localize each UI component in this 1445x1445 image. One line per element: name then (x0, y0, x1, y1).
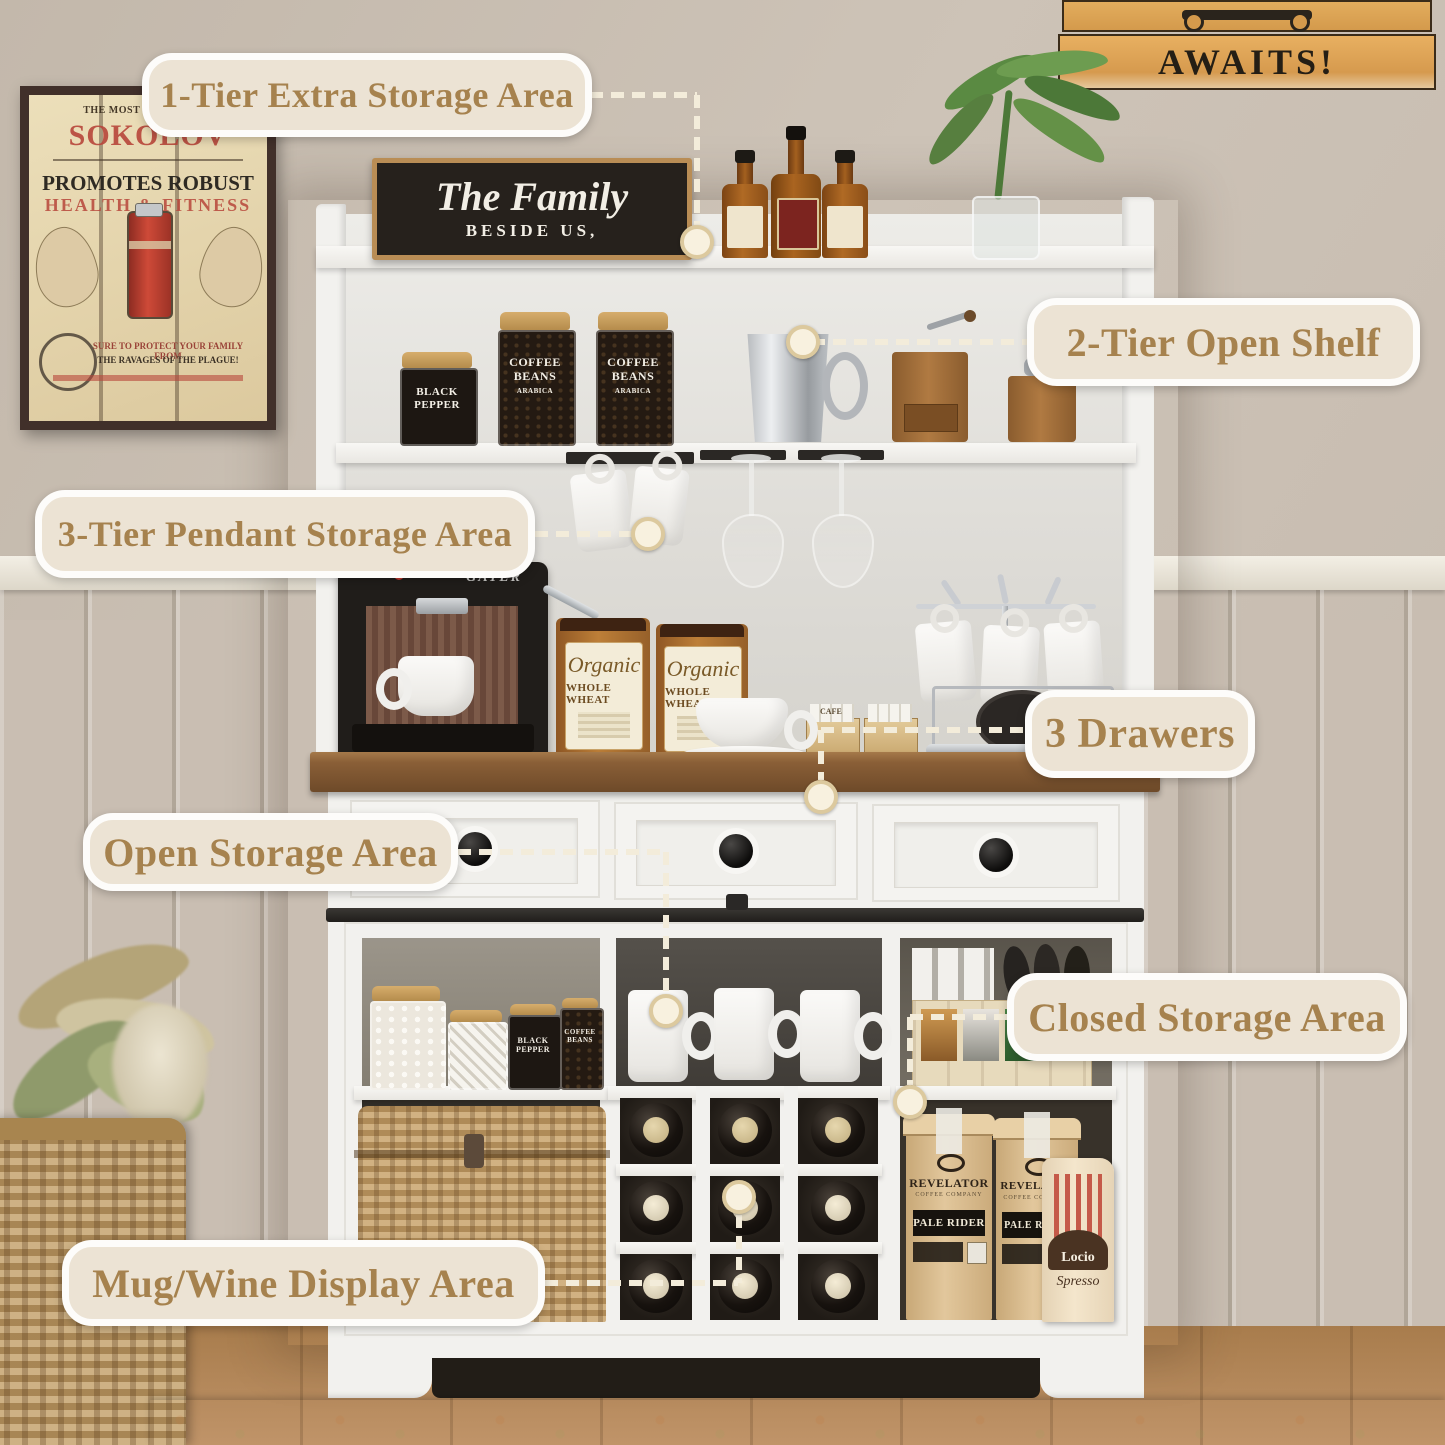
poster-bottom2: THE RAVAGES OF THE PLAGUE! (83, 355, 253, 365)
menu-books (912, 948, 994, 1006)
drawer (872, 804, 1120, 902)
callout-connector-line (821, 727, 1025, 733)
eye-logo-icon (937, 1154, 965, 1172)
bamboo-lid (450, 1010, 502, 1022)
wine-cork (643, 1273, 669, 1299)
callout-endpoint (631, 517, 665, 551)
wine-cubby (798, 1254, 878, 1320)
coffee-bean-jar: COFFEEBEANS ARABICA (498, 312, 572, 442)
jar-contents (560, 1008, 604, 1090)
wine-bottle (718, 1103, 772, 1157)
awaits-sign: AWAITS! (1058, 0, 1434, 88)
grinder-body (892, 352, 968, 442)
callout-connector-line (535, 531, 635, 537)
hanging-mug (569, 469, 634, 553)
bag-brand: REVELATOR (906, 1176, 992, 1191)
coffee-grinder (880, 318, 980, 442)
wine-bottle (811, 1181, 865, 1235)
glass-bowl (722, 514, 784, 588)
wine-cork (825, 1195, 851, 1221)
callout-connector-line (694, 95, 700, 225)
glass-bowl (812, 514, 874, 588)
callout-pill: 2-Tier Open Shelf (1027, 298, 1420, 386)
bamboo-lid (598, 312, 668, 330)
family-sign: The Family BESIDE US, (372, 158, 692, 260)
grinder-knob (964, 310, 976, 322)
callout-connector-line (663, 852, 669, 994)
espresso-machine: GATER (338, 562, 548, 764)
callout-endpoint (722, 1180, 756, 1214)
machine-grouphead (416, 598, 468, 614)
jar-label: COFFEEBEANS ARABICA (498, 356, 572, 395)
awaits-plank-top (1062, 0, 1432, 32)
mug-handle (854, 1012, 892, 1060)
grinder-hopper (908, 324, 952, 352)
wine-glass (722, 454, 780, 586)
bamboo-lid (500, 312, 570, 330)
coffee-bean-jar: COFFEEBEANS (560, 998, 600, 1086)
wine-cork (825, 1117, 851, 1143)
wine-grid-divider (784, 1086, 798, 1322)
wine-cubby (710, 1254, 780, 1320)
annotated-product-image: THE MOST POPULAR FO SOKOLOV PROMOTES ROB… (0, 0, 1445, 1445)
jar-contents (448, 1022, 508, 1090)
bamboo-lid (372, 986, 440, 1001)
wine-cubby (620, 1254, 692, 1320)
pepper-jar: BLACKPEPPER (400, 352, 474, 442)
table-edge-foreground (150, 1400, 1445, 1445)
canister-lid (660, 624, 744, 637)
poster-rule (53, 159, 243, 161)
wine-bottle (629, 1103, 683, 1157)
whisky-bottle (722, 150, 768, 258)
poster-tonic-bottle (127, 211, 173, 319)
callout-connector-line (545, 1280, 738, 1286)
wine-cubby (798, 1176, 878, 1242)
vintage-fitness-poster: THE MOST POPULAR FO SOKOLOV PROMOTES ROB… (20, 86, 276, 430)
label-art (578, 712, 630, 738)
pitcher-handle (822, 352, 868, 420)
coffee-bag: REVELATOR COFFEE COMPANY PALE RIDER (906, 1114, 992, 1320)
wine-grid-shelf (616, 1242, 882, 1254)
sugar-packets (868, 704, 912, 722)
glass-stem (749, 460, 754, 516)
canister-label: Organic WHOLE WHEAT (565, 642, 643, 750)
bamboo-lid (562, 998, 598, 1008)
sugar-cube-jar (448, 1010, 504, 1086)
wine-bottle (811, 1259, 865, 1313)
awaits-plank-bottom: AWAITS! (1058, 34, 1436, 90)
whisky-bottle (771, 126, 821, 258)
jar-contents (370, 1001, 446, 1090)
espresso-brand: Locio (1061, 1250, 1094, 1270)
glass-stem (839, 460, 844, 516)
canister-script: Organic (568, 654, 641, 676)
bag-tape (936, 1108, 962, 1154)
wine-cork (643, 1117, 669, 1143)
bag-band: PALE RIDER (913, 1210, 985, 1236)
poster-right-arm (193, 221, 270, 312)
bag-sub: COFFEE COMPANY (906, 1192, 992, 1198)
coffee-bean-jar: COFFEEBEANS ARABICA (596, 312, 670, 442)
basket-strap (464, 1134, 484, 1168)
bag-table (967, 1242, 987, 1264)
poster-red-bar (53, 375, 243, 381)
display-mug (714, 988, 774, 1080)
wine-bottle (629, 1259, 683, 1313)
callout-connector-line (818, 730, 824, 780)
drawer-knob (979, 838, 1013, 872)
callout-endpoint (649, 994, 683, 1028)
base-shadow-gap (432, 1358, 1040, 1398)
espresso-arch: Locio (1048, 1230, 1108, 1270)
bottle-cap (735, 150, 755, 163)
wine-cubby (620, 1176, 692, 1242)
organic-canister: Organic WHOLE WHEAT (556, 618, 650, 762)
car-wheel (1184, 12, 1204, 32)
cup-handle (784, 710, 818, 750)
whisky-bottle (822, 150, 868, 258)
wine-cubby (710, 1098, 780, 1164)
espresso-name: Spresso (1042, 1274, 1114, 1290)
poster-left-arm (27, 221, 104, 312)
callout-connector-line (812, 339, 1027, 345)
awaits-text: AWAITS! (1158, 41, 1336, 83)
wine-cubby (620, 1098, 692, 1164)
canister-script: Organic (667, 658, 740, 680)
hutch-right-side (1122, 197, 1154, 764)
bottle-label (827, 206, 863, 248)
bottle-label (777, 198, 819, 250)
callout-pill: 3-Tier Pendant Storage Area (35, 490, 535, 578)
jar-label: COFFEEBEANS (560, 1028, 600, 1044)
callout-endpoint (893, 1085, 927, 1119)
wine-bottle (718, 1259, 772, 1313)
grinder-drawer (904, 404, 958, 432)
callout-pill: 3 Drawers (1025, 690, 1255, 778)
bottle-cap (786, 126, 806, 140)
machine-driptray (352, 724, 534, 752)
bamboo-lid (510, 1004, 556, 1015)
canister-lid (560, 618, 646, 631)
right-bay-shelf (896, 1086, 1116, 1100)
cup-handle (376, 668, 412, 710)
espresso-bag: Locio Spresso (1042, 1158, 1114, 1322)
bottle-cap (135, 203, 163, 217)
callout-connector-line (907, 1017, 913, 1085)
family-sign-line2: BESIDE US, (466, 221, 599, 241)
bag-name: PALE RIDER (913, 1217, 985, 1229)
callout-endpoint (680, 225, 714, 259)
wine-bottle (629, 1181, 683, 1235)
wine-glass (812, 454, 870, 586)
base-leg (328, 1336, 432, 1398)
wine-cork (732, 1117, 758, 1143)
poster-line1: PROMOTES ROBUST (29, 171, 267, 196)
jar-label: BLACKPEPPER (508, 1036, 558, 1054)
wine-grid-divider (696, 1086, 710, 1322)
wine-bottle (811, 1103, 865, 1157)
mug-handle (1000, 607, 1030, 637)
callout-connector-line (590, 92, 697, 98)
pearl-jar (370, 986, 442, 1086)
bag-table (913, 1242, 963, 1262)
pampas-plume (112, 1004, 208, 1130)
cup-bowl (696, 698, 788, 750)
sliding-door-rail (326, 908, 1144, 922)
callout-pill: Open Storage Area (83, 813, 458, 891)
family-sign-line1: The Family (436, 177, 628, 217)
callout-endpoint (804, 780, 838, 814)
bottle-band (129, 241, 171, 249)
callout-connector-line (736, 1215, 742, 1283)
sugar-packet-label: CAFE (820, 707, 842, 716)
drawer-knob (719, 834, 753, 868)
machine-cup (398, 656, 474, 716)
canister-name: WHOLE WHEAT (566, 682, 642, 706)
wine-cork (643, 1195, 669, 1221)
callout-pill: 1-Tier Extra Storage Area (142, 53, 592, 137)
bamboo-lid (402, 352, 472, 368)
bottle-cap (835, 150, 855, 163)
glass-vase (972, 196, 1040, 260)
door-roller (726, 894, 748, 910)
pepper-jar: BLACKPEPPER (508, 1004, 558, 1086)
callout-pill: Closed Storage Area (1007, 973, 1407, 1061)
wine-grid-shelf (616, 1164, 882, 1176)
callout-pill: Mug/Wine Display Area (62, 1240, 545, 1326)
basket-rim (0, 1118, 186, 1140)
jar-label: COFFEEBEANS ARABICA (596, 356, 670, 395)
bottle-label (727, 206, 763, 248)
callout-connector-line (910, 1014, 1007, 1020)
callout-connector-line (458, 849, 665, 855)
display-mug (800, 990, 860, 1082)
jar-label: BLACKPEPPER (400, 386, 474, 411)
bag-tape (1024, 1112, 1050, 1158)
car-wheel (1290, 12, 1310, 32)
base-leg (1040, 1336, 1144, 1398)
callout-endpoint (786, 325, 820, 359)
wine-cubby (798, 1098, 878, 1164)
wine-cork (825, 1273, 851, 1299)
